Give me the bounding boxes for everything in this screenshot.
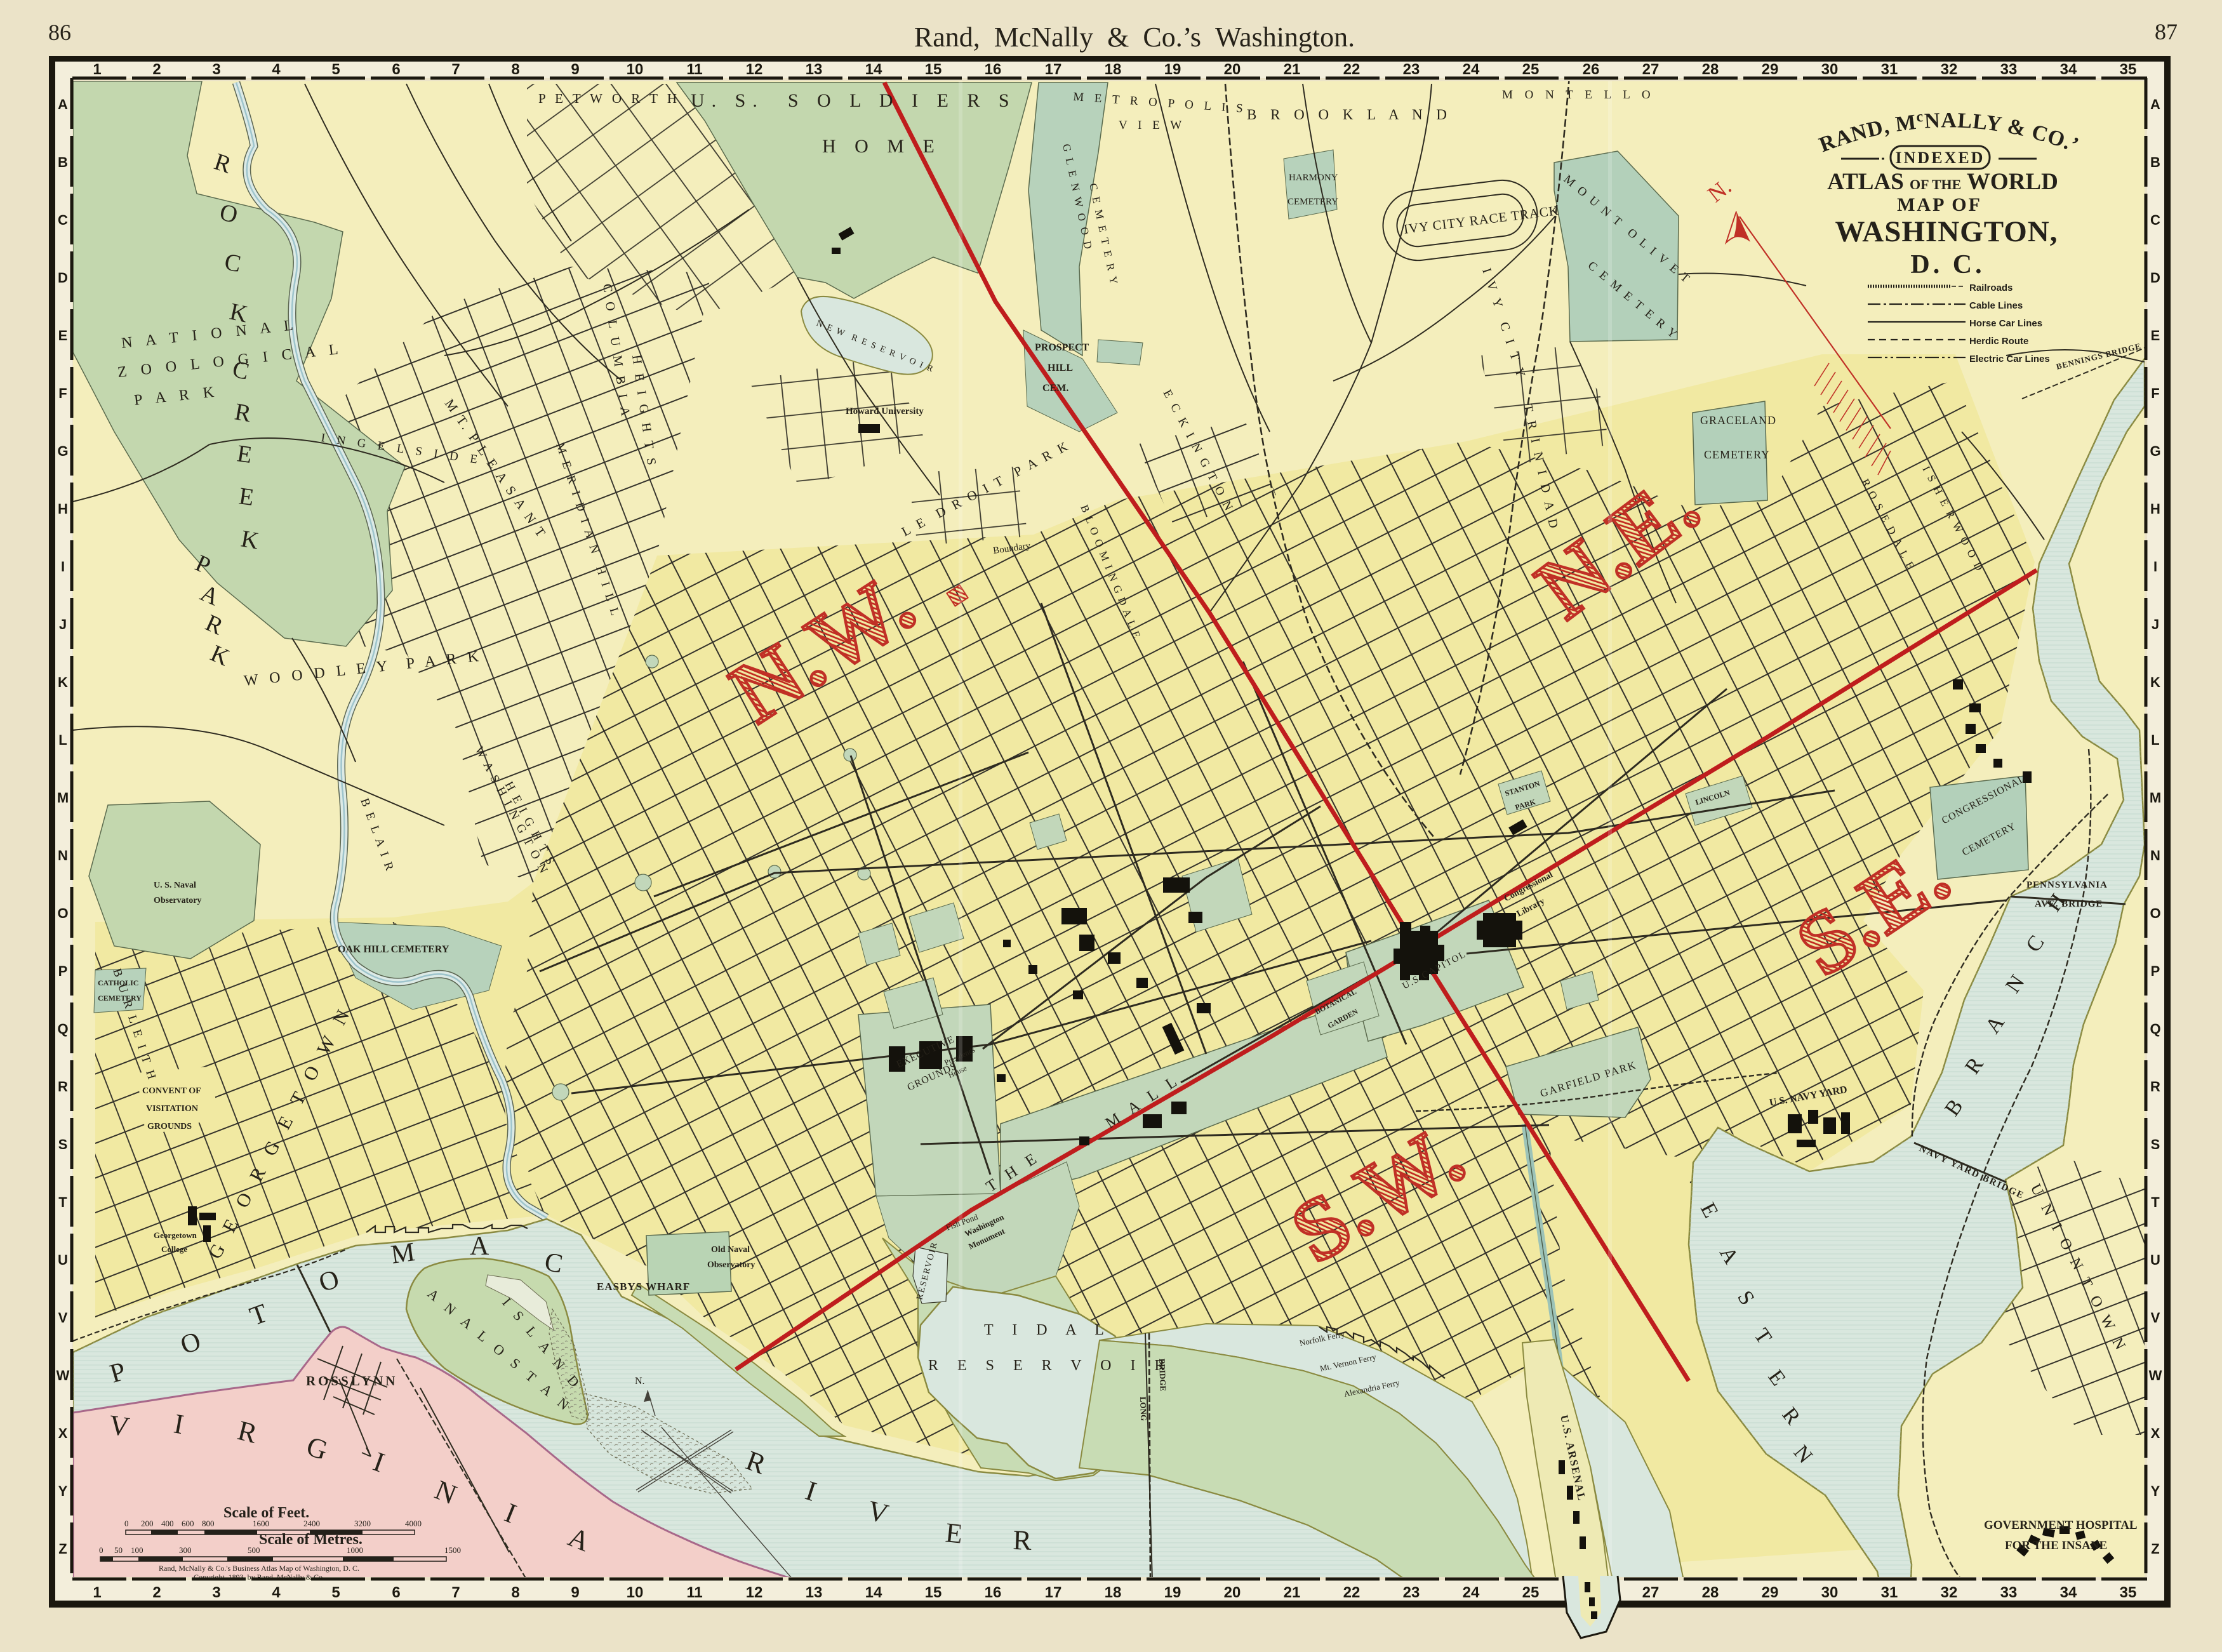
svg-text:R E S E R V O I R: R E S E R V O I R (928, 1357, 1172, 1374)
svg-text:U: U (2150, 1252, 2160, 1268)
svg-text:D: D (58, 270, 68, 286)
svg-text:3200: 3200 (354, 1519, 371, 1528)
svg-text:X: X (2151, 1425, 2160, 1441)
svg-text:29: 29 (1762, 1584, 1779, 1601)
svg-text:Y: Y (2151, 1483, 2160, 1499)
svg-text:M: M (389, 1237, 416, 1270)
svg-text:R: R (58, 1079, 68, 1095)
svg-text:30: 30 (1821, 1584, 1839, 1601)
svg-text:Old Naval: Old Naval (711, 1245, 750, 1255)
svg-text:50: 50 (114, 1545, 123, 1555)
svg-text:S: S (58, 1136, 68, 1152)
svg-text:23: 23 (1403, 1584, 1420, 1601)
svg-text:1: 1 (93, 61, 101, 78)
svg-text:U: U (58, 1252, 68, 1268)
svg-text:Rand, McNally & Co.’s Wash: Rand, McNally & Co.’s Washington. (914, 22, 1355, 53)
svg-text:200: 200 (141, 1519, 154, 1528)
svg-text:G: G (57, 443, 68, 459)
svg-text:24: 24 (1463, 61, 1480, 78)
svg-text:H: H (2150, 501, 2160, 517)
svg-text:500: 500 (248, 1545, 260, 1555)
svg-text:10: 10 (627, 1584, 644, 1601)
svg-text:CONVENT OF: CONVENT OF (142, 1086, 201, 1096)
svg-text:ROSSLYNN: ROSSLYNN (306, 1373, 397, 1389)
svg-text:B: B (2150, 154, 2160, 170)
svg-text:25: 25 (1522, 1584, 1540, 1601)
svg-text:35: 35 (2120, 1584, 2137, 1601)
svg-text:4: 4 (272, 1584, 281, 1601)
svg-text:CEMETERY: CEMETERY (98, 994, 142, 1003)
svg-text:87: 87 (2155, 19, 2178, 44)
svg-text:B: B (58, 154, 68, 170)
svg-text:D. C.: D. C. (1910, 250, 1985, 279)
svg-text:9: 9 (571, 1584, 579, 1601)
svg-text:1: 1 (93, 1584, 101, 1601)
svg-text:12: 12 (746, 61, 763, 78)
svg-text:Rand, McNally & Co.'s Business: Rand, McNally & Co.'s Business Atlas Map… (159, 1564, 359, 1573)
svg-text:WASHINGTON,: WASHINGTON, (1835, 215, 2058, 248)
svg-text:G: G (2150, 443, 2160, 459)
svg-text:21: 21 (1284, 1584, 1301, 1601)
svg-text:Horse Car Lines: Horse Car Lines (1969, 318, 2042, 329)
svg-text:33: 33 (2000, 1584, 2018, 1601)
svg-text:11: 11 (686, 61, 702, 78)
svg-text:8: 8 (511, 1584, 519, 1601)
svg-text:7: 7 (451, 1584, 460, 1601)
svg-text:V: V (58, 1310, 68, 1326)
svg-text:MAP OF: MAP OF (1897, 194, 1982, 215)
svg-text:CEMETERY: CEMETERY (1287, 197, 1338, 207)
svg-text:2: 2 (152, 61, 161, 78)
svg-text:K: K (58, 674, 68, 690)
svg-text:20: 20 (1224, 1584, 1241, 1601)
svg-text:1500: 1500 (444, 1545, 461, 1555)
svg-text:Z: Z (58, 1541, 67, 1557)
svg-text:7: 7 (451, 61, 460, 78)
svg-text:Herdic Route: Herdic Route (1969, 336, 2028, 347)
svg-text:27: 27 (1642, 1584, 1660, 1601)
svg-text:P: P (58, 963, 68, 979)
svg-text:34: 34 (2060, 1584, 2077, 1601)
svg-text:28: 28 (1702, 1584, 1719, 1601)
svg-text:T I D A L: T I D A L (984, 1322, 1112, 1338)
svg-text:P E T W O R T H: P E T W O R T H (538, 91, 680, 106)
svg-text:Observatory: Observatory (154, 896, 201, 905)
svg-text:13: 13 (806, 1584, 823, 1601)
svg-text:26: 26 (1583, 61, 1600, 78)
svg-text:33: 33 (2000, 61, 2018, 78)
svg-text:M: M (2150, 790, 2161, 806)
svg-text:N: N (58, 848, 68, 863)
svg-text:E: E (2151, 328, 2160, 343)
svg-text:E: E (58, 328, 68, 343)
svg-text:23: 23 (1403, 61, 1420, 78)
svg-text:V: V (2151, 1310, 2160, 1326)
svg-text:2: 2 (152, 1584, 161, 1601)
svg-text:0: 0 (124, 1519, 129, 1528)
svg-text:800: 800 (202, 1519, 215, 1528)
svg-text:H O M E: H O M E (822, 136, 941, 157)
svg-text:FOR THE INSANE: FOR THE INSANE (2005, 1539, 2107, 1552)
svg-text:GOVERNMENT HOSPITAL: GOVERNMENT HOSPITAL (1984, 1519, 2138, 1532)
svg-text:CATHOLIC: CATHOLIC (98, 978, 138, 987)
svg-text:31: 31 (1881, 1584, 1898, 1601)
svg-text:30: 30 (1821, 61, 1839, 78)
svg-text:31: 31 (1881, 61, 1898, 78)
svg-text:34: 34 (2060, 61, 2077, 78)
svg-text:15: 15 (925, 61, 942, 78)
svg-text:O: O (2150, 905, 2160, 921)
svg-text:N.: N. (635, 1376, 645, 1387)
svg-text:CEM.: CEM. (1042, 383, 1068, 394)
svg-text:400: 400 (161, 1519, 174, 1528)
svg-text:K: K (2150, 674, 2160, 690)
svg-text:PROSPECT: PROSPECT (1035, 342, 1089, 353)
svg-text:1000: 1000 (347, 1545, 363, 1555)
svg-text:A: A (58, 97, 68, 112)
svg-text:A: A (2150, 97, 2160, 112)
svg-text:Q: Q (57, 1021, 68, 1037)
svg-text:P: P (2151, 963, 2160, 979)
svg-text:19: 19 (1164, 1584, 1181, 1601)
svg-text:4: 4 (272, 61, 281, 78)
svg-text:I: I (2153, 559, 2157, 575)
svg-text:18: 18 (1105, 61, 1122, 78)
svg-text:T: T (58, 1194, 67, 1210)
svg-text:LONG: LONG (1138, 1397, 1148, 1422)
svg-text:14: 14 (865, 61, 882, 78)
svg-text:3: 3 (212, 61, 220, 78)
svg-text:0: 0 (99, 1545, 103, 1555)
svg-text:4000: 4000 (405, 1519, 422, 1528)
svg-text:3: 3 (212, 1584, 220, 1601)
svg-text:C: C (2150, 212, 2160, 228)
svg-text:CEMETERY: CEMETERY (1704, 448, 1770, 461)
svg-text:Q: Q (2150, 1021, 2160, 1037)
svg-text:2400: 2400 (303, 1519, 320, 1528)
svg-text:32: 32 (1941, 1584, 1958, 1601)
svg-text:17: 17 (1045, 61, 1062, 78)
svg-text:Y: Y (58, 1483, 68, 1499)
svg-text:L: L (2151, 732, 2159, 748)
svg-text:29: 29 (1762, 61, 1779, 78)
svg-text:86: 86 (48, 20, 71, 45)
svg-text:6: 6 (392, 61, 400, 78)
svg-text:6: 6 (392, 1584, 400, 1601)
svg-text:10: 10 (627, 61, 644, 78)
svg-text:W: W (57, 1368, 70, 1383)
svg-text:35: 35 (2120, 61, 2137, 78)
svg-text:C: C (58, 212, 68, 228)
svg-text:T: T (2151, 1194, 2160, 1210)
svg-text:100: 100 (131, 1545, 143, 1555)
svg-text:GRACELAND: GRACELAND (1700, 414, 1776, 427)
svg-text:Railroads: Railroads (1969, 283, 2012, 293)
svg-text:O: O (57, 905, 68, 921)
svg-text:V I E W: V I E W (1119, 119, 1185, 132)
svg-text:32: 32 (1941, 61, 1958, 78)
svg-text:5: 5 (331, 1584, 340, 1601)
svg-text:F: F (58, 385, 67, 401)
svg-text:16: 16 (985, 1584, 1002, 1601)
svg-text:11: 11 (686, 1584, 702, 1601)
svg-text:AVE. BRIDGE: AVE. BRIDGE (2035, 899, 2103, 909)
svg-text:U. S. S O L D I E R S: U. S. S O L D I E R S (691, 90, 1016, 111)
svg-text:300: 300 (179, 1545, 192, 1555)
svg-text:GROUNDS: GROUNDS (147, 1122, 192, 1131)
svg-text:9: 9 (571, 61, 579, 78)
svg-text:M: M (57, 790, 69, 806)
svg-text:U. S. Naval: U. S. Naval (154, 881, 196, 890)
svg-text:VISITATION: VISITATION (146, 1104, 198, 1114)
svg-text:Cable Lines: Cable Lines (1969, 300, 2023, 311)
svg-text:F: F (2151, 385, 2159, 401)
svg-text:Howard University: Howard University (846, 406, 924, 416)
svg-text:EASBYS WHARF: EASBYS WHARF (597, 1281, 690, 1293)
svg-text:R: R (1013, 1524, 1033, 1556)
svg-text:25: 25 (1522, 61, 1540, 78)
svg-text:600: 600 (182, 1519, 194, 1528)
svg-text:M O N T E L L O: M O N T E L L O (1502, 88, 1655, 102)
svg-text:J: J (2152, 616, 2159, 632)
svg-text:N: N (2150, 848, 2160, 863)
svg-text:28: 28 (1702, 61, 1719, 78)
svg-text:HARMONY: HARMONY (1289, 173, 1338, 183)
svg-text:H: H (58, 501, 68, 517)
svg-text:21: 21 (1284, 61, 1301, 78)
svg-text:BRIDGE: BRIDGE (1157, 1359, 1168, 1392)
svg-text:X: X (58, 1425, 68, 1441)
svg-text:18: 18 (1105, 1584, 1122, 1601)
svg-text:8: 8 (511, 61, 519, 78)
svg-text:J: J (59, 616, 67, 632)
svg-text:22: 22 (1343, 61, 1360, 78)
svg-text:Electric Car Lines: Electric Car Lines (1969, 354, 2050, 364)
svg-text:13: 13 (806, 61, 823, 78)
svg-text:20: 20 (1224, 61, 1241, 78)
svg-text:PENNSYLVANIA: PENNSYLVANIA (2026, 880, 2108, 890)
svg-text:19: 19 (1164, 61, 1181, 78)
svg-text:14: 14 (865, 1584, 882, 1601)
svg-text:College: College (161, 1244, 187, 1254)
svg-text:A: A (470, 1232, 489, 1261)
svg-text:INDEXED: INDEXED (1896, 149, 1985, 167)
svg-text:W: W (2149, 1368, 2162, 1383)
svg-text:24: 24 (1463, 1584, 1480, 1601)
svg-text:Z: Z (2151, 1541, 2159, 1557)
svg-text:B R O O K L A N D: B R O O K L A N D (1247, 107, 1452, 123)
svg-text:17: 17 (1045, 1584, 1062, 1601)
svg-text:Observatory: Observatory (707, 1260, 755, 1270)
svg-text:22: 22 (1343, 1584, 1360, 1601)
svg-text:15: 15 (925, 1584, 942, 1601)
svg-text:5: 5 (331, 61, 340, 78)
svg-text:S: S (2151, 1136, 2160, 1152)
svg-text:27: 27 (1642, 61, 1660, 78)
svg-text:OAK HILL CEMETERY: OAK HILL CEMETERY (338, 944, 449, 955)
svg-text:HILL: HILL (1048, 363, 1073, 373)
svg-text:R: R (2150, 1079, 2160, 1095)
svg-text:1600: 1600 (253, 1519, 269, 1528)
svg-text:12: 12 (746, 1584, 763, 1601)
svg-text:16: 16 (985, 61, 1002, 78)
svg-text:Georgetown: Georgetown (154, 1230, 197, 1240)
svg-text:D: D (2150, 270, 2160, 286)
svg-text:I: I (61, 559, 65, 575)
svg-text:L: L (58, 732, 67, 748)
